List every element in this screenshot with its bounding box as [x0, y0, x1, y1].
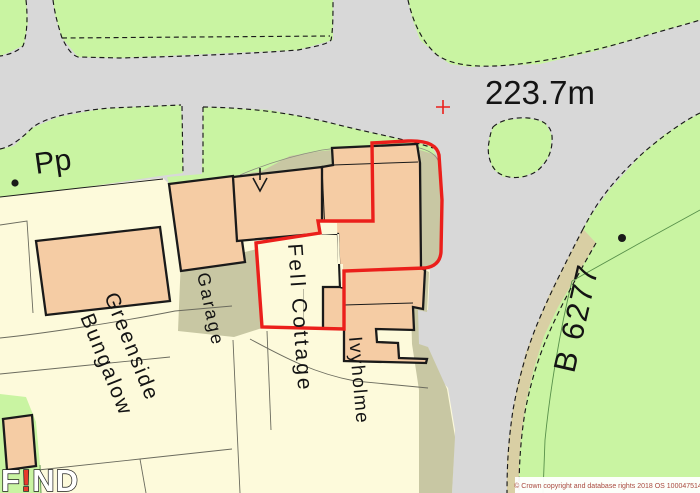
map-canvas: 223.7m Pp Greenside Bungalow Garage Fell…: [0, 0, 700, 493]
find-watermark: F!ND: [1, 463, 79, 493]
building-south-west: [3, 415, 36, 470]
find-watermark-f: F: [1, 463, 21, 493]
find-watermark-bang: !: [21, 463, 32, 493]
pp-label: Pp: [32, 143, 73, 181]
verge-top-strip: [53, 0, 333, 58]
os-map-extract: 223.7m Pp Greenside Bungalow Garage Fell…: [0, 0, 700, 493]
find-watermark-nd: ND: [32, 463, 79, 493]
spot-height-label: 223.7m: [485, 74, 595, 111]
building-row-west: [233, 167, 325, 241]
point-feature-dot: [11, 179, 18, 186]
copyright-text: © Crown copyright and database rights 20…: [514, 482, 700, 490]
point-feature-dot: [618, 234, 626, 242]
